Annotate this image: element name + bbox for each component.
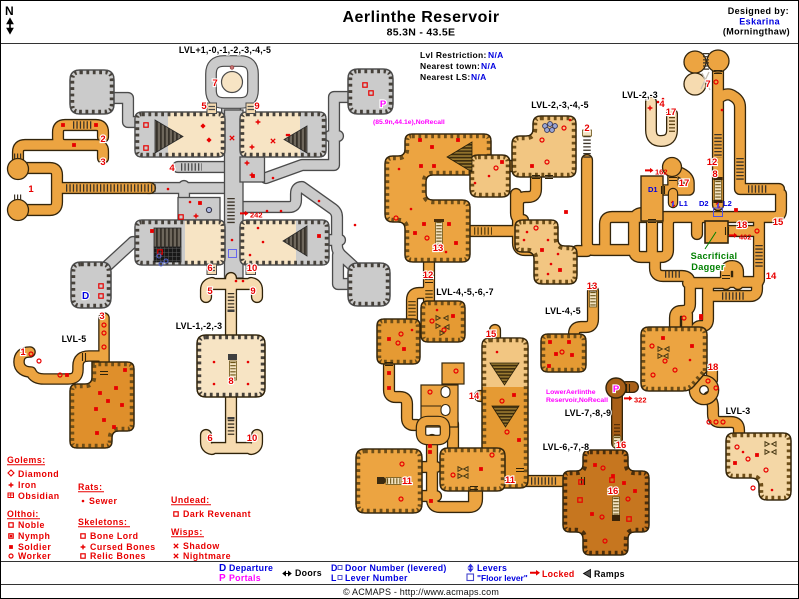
svg-text:LVL-5: LVL-5 — [62, 334, 87, 344]
svg-text:(Morningthaw): (Morningthaw) — [723, 27, 790, 37]
svg-text:Diamond: Diamond — [18, 469, 59, 479]
svg-text:P: P — [380, 99, 387, 110]
svg-text:N/A: N/A — [488, 50, 504, 60]
svg-text:4: 4 — [169, 163, 175, 174]
svg-text:Doors: Doors — [295, 568, 322, 578]
svg-text:Nearest LS:: Nearest LS: — [420, 72, 471, 82]
svg-text:Door Number (levered): Door Number (levered) — [345, 563, 447, 573]
svg-text:9: 9 — [254, 101, 259, 112]
svg-text:2: 2 — [584, 123, 589, 134]
svg-text:7: 7 — [212, 78, 217, 89]
svg-text:6: 6 — [207, 263, 212, 274]
svg-text:"Floor lever": "Floor lever" — [477, 573, 528, 583]
svg-text:Iron: Iron — [18, 480, 37, 490]
svg-text:Noble: Noble — [18, 520, 45, 530]
svg-text:402: 402 — [739, 233, 752, 242]
svg-text:Lever Number: Lever Number — [345, 573, 408, 583]
svg-text:17: 17 — [666, 107, 677, 118]
svg-text:LVL-2,-3,-4,-5: LVL-2,-3,-4,-5 — [531, 100, 588, 110]
svg-text:LVL-2,-3: LVL-2,-3 — [622, 90, 658, 100]
svg-text:(85.9n,44.1e),NoRecall: (85.9n,44.1e),NoRecall — [373, 119, 445, 126]
svg-text:322: 322 — [634, 396, 647, 405]
svg-text:LVL-1,-2,-3: LVL-1,-2,-3 — [176, 321, 223, 331]
svg-text:Ramps: Ramps — [594, 569, 625, 579]
svg-text:12: 12 — [423, 270, 434, 281]
svg-text:Nearest town:: Nearest town: — [420, 61, 480, 71]
svg-text:Sewer: Sewer — [89, 496, 117, 506]
svg-text:D: D — [82, 291, 89, 302]
svg-text:1: 1 — [28, 184, 34, 195]
svg-text:Golems:: Golems: — [7, 455, 46, 465]
svg-text:Portals: Portals — [229, 573, 261, 583]
svg-text:Obsidian: Obsidian — [18, 491, 60, 501]
svg-text:LVL+1,-0,-1,-2,-3,-4,-5: LVL+1,-0,-1,-2,-3,-4,-5 — [179, 45, 271, 55]
svg-text:Skeletons:: Skeletons: — [78, 517, 128, 527]
svg-text:10: 10 — [247, 263, 258, 274]
svg-text:Wisps:: Wisps: — [171, 527, 203, 537]
svg-text:© ACMAPS - http://www.acmaps.c: © ACMAPS - http://www.acmaps.com — [343, 587, 499, 597]
svg-text:5: 5 — [201, 101, 207, 112]
svg-text:D: D — [331, 563, 337, 573]
svg-text:D1: D1 — [648, 185, 658, 194]
svg-text:Undead:: Undead: — [171, 495, 210, 505]
svg-text:Olthoi:: Olthoi: — [7, 509, 39, 519]
svg-text:7: 7 — [705, 79, 710, 90]
svg-text:P: P — [219, 573, 226, 584]
svg-text:N/A: N/A — [471, 72, 487, 82]
svg-text:Locked: Locked — [542, 569, 575, 579]
svg-text:Bone Lord: Bone Lord — [90, 531, 138, 541]
svg-text:Levers: Levers — [477, 563, 507, 573]
svg-text:8: 8 — [228, 376, 233, 387]
svg-text:LVL-7,-8,-9: LVL-7,-8,-9 — [565, 408, 612, 418]
svg-text:9: 9 — [250, 286, 255, 297]
svg-text:Dark Revenant: Dark Revenant — [183, 509, 251, 519]
svg-text:LVL-3: LVL-3 — [726, 406, 751, 416]
svg-text:17: 17 — [679, 178, 690, 189]
svg-text:15: 15 — [486, 329, 497, 340]
svg-text:11: 11 — [505, 475, 516, 486]
svg-text:18: 18 — [737, 220, 748, 231]
svg-text:5: 5 — [207, 286, 213, 297]
svg-text:14: 14 — [469, 391, 480, 402]
svg-text:Departure: Departure — [229, 563, 273, 573]
svg-text:3: 3 — [99, 311, 104, 322]
svg-text:N/A: N/A — [481, 61, 497, 71]
svg-text:Sacrificial: Sacrificial — [691, 251, 738, 261]
svg-text:Reservoir,NoRecall: Reservoir,NoRecall — [546, 397, 608, 404]
svg-text:LowerAerlinthe: LowerAerlinthe — [546, 389, 596, 396]
svg-text:11: 11 — [402, 476, 413, 487]
svg-text:L: L — [331, 573, 337, 583]
svg-text:16: 16 — [616, 440, 627, 451]
svg-text:Aerlinthe Reservoir: Aerlinthe Reservoir — [342, 9, 499, 26]
svg-text:2: 2 — [100, 134, 105, 145]
svg-text:L1: L1 — [679, 199, 688, 208]
svg-text:N: N — [5, 4, 14, 18]
svg-text:4: 4 — [659, 99, 665, 110]
svg-text:10: 10 — [247, 433, 258, 444]
svg-text:LVL-6,-7,-8: LVL-6,-7,-8 — [543, 442, 590, 452]
svg-text:Lvl Restriction:: Lvl Restriction: — [420, 50, 487, 60]
svg-text:14: 14 — [766, 271, 777, 282]
svg-text:8: 8 — [712, 169, 717, 180]
svg-text:85.3N - 43.5E: 85.3N - 43.5E — [387, 27, 456, 39]
svg-text:Shadow: Shadow — [183, 541, 220, 551]
svg-text:162: 162 — [655, 168, 668, 177]
svg-text:P: P — [613, 384, 620, 395]
svg-text:Designed by:: Designed by: — [728, 6, 789, 16]
svg-text:1: 1 — [20, 347, 26, 358]
svg-text:Nightmare: Nightmare — [183, 551, 231, 561]
svg-text:LVL-4,-5: LVL-4,-5 — [545, 306, 581, 316]
svg-text:12: 12 — [707, 157, 718, 168]
svg-text:Nymph: Nymph — [18, 531, 50, 541]
svg-text:13: 13 — [433, 243, 444, 254]
svg-text:LVL-4,-5,-6,-7: LVL-4,-5,-6,-7 — [436, 287, 493, 297]
svg-text:Relic Bones: Relic Bones — [90, 551, 146, 561]
svg-text:Dagger: Dagger — [691, 262, 725, 272]
svg-text:Worker: Worker — [18, 551, 51, 561]
svg-text:18: 18 — [708, 362, 719, 373]
svg-text:6: 6 — [207, 433, 212, 444]
svg-text:3: 3 — [100, 157, 105, 168]
svg-text:242: 242 — [250, 211, 263, 220]
svg-text:15: 15 — [773, 217, 784, 228]
svg-text:13: 13 — [587, 281, 598, 292]
svg-text:Eskarina: Eskarina — [739, 17, 780, 27]
svg-text:D2: D2 — [699, 199, 709, 208]
svg-text:Rats:: Rats: — [78, 482, 103, 492]
svg-text:16: 16 — [608, 486, 619, 497]
svg-text:L2: L2 — [723, 199, 732, 208]
